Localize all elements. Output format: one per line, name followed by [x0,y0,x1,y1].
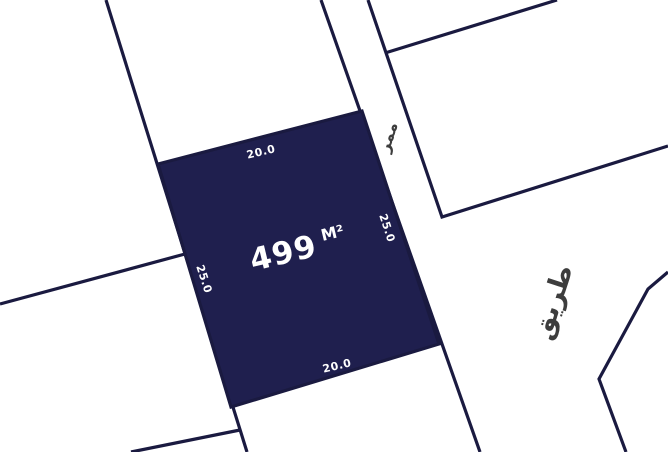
plot-map: 499 M² 20.0 20.0 25.0 25.0 ممر طريق [0,0,668,452]
plot-map-canvas: 499 M² 20.0 20.0 25.0 25.0 ممر طريق [0,0,668,452]
